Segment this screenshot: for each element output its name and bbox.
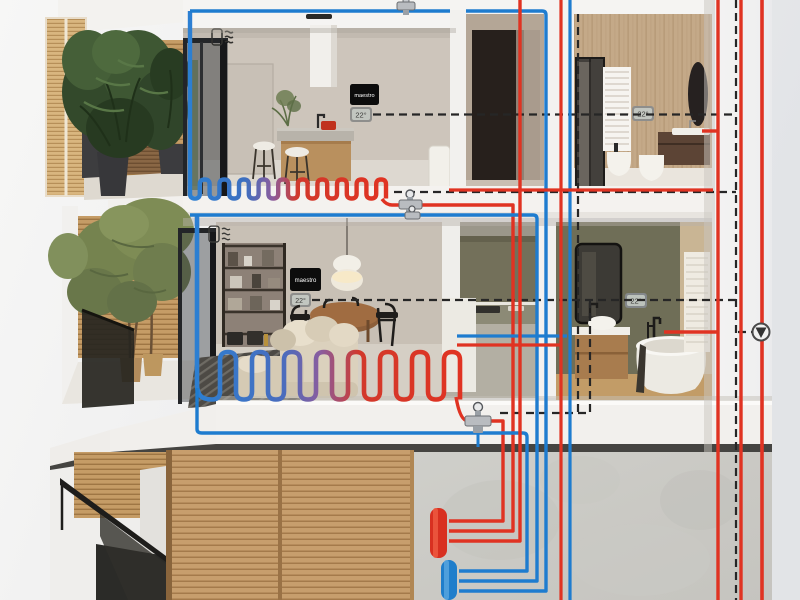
svg-text:maestro: maestro <box>354 93 374 99</box>
svg-text:22°: 22° <box>355 111 366 120</box>
svg-text:maestro: maestro <box>295 278 317 284</box>
svg-text:22°: 22° <box>295 297 306 305</box>
